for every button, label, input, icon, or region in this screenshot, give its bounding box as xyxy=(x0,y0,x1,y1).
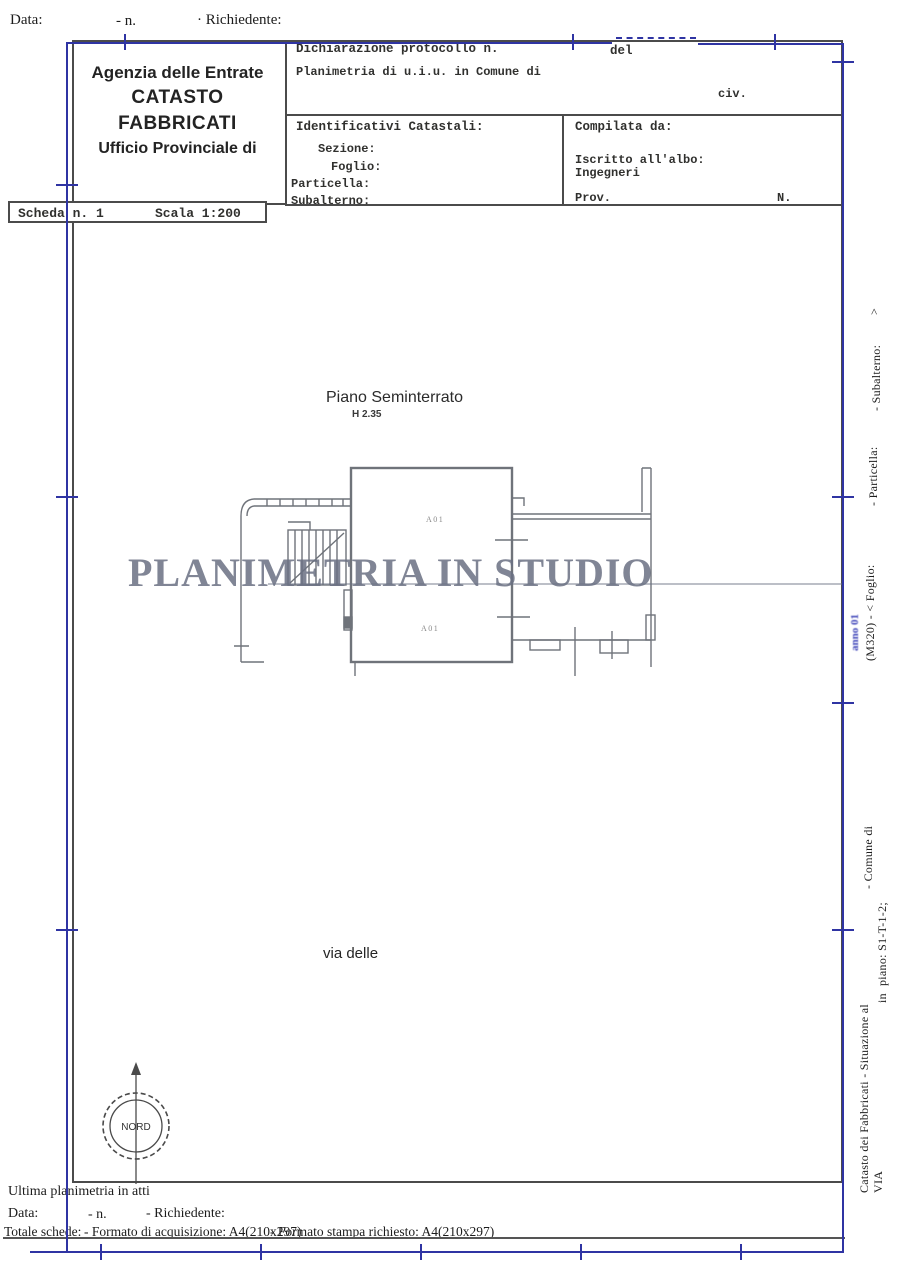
sidebar-catasto-text: Catasto dei Fabbricati - Situazione al xyxy=(857,1004,872,1193)
plan-pillar xyxy=(344,617,352,628)
sidebar-via-text: VIA xyxy=(871,1171,886,1193)
albo-value: Ingegneri xyxy=(575,166,640,180)
registration-tick xyxy=(260,1244,262,1260)
top-richiedente-label: · Richiedente: xyxy=(197,12,282,29)
footer-richiedente-label: - Richiedente: xyxy=(146,1206,225,1222)
subalterno-label: Subalterno: xyxy=(291,194,370,208)
sidebar-subalterno-text: - Subalterno: xyxy=(869,345,884,411)
top-data-label: Data: xyxy=(10,12,42,29)
sidebar-comune-text: - Comune di xyxy=(861,826,876,889)
registration-tick xyxy=(56,184,78,186)
albo-number-label: N. xyxy=(777,191,791,205)
identificativi-title: Identificativi Catastali: xyxy=(296,120,484,134)
sidebar-close-bracket: > xyxy=(867,308,882,315)
scheda-number: Scheda n. 1 xyxy=(18,206,104,221)
sidebar-blue-annotation: anno 01 xyxy=(849,614,861,651)
scheda-bar: Scheda n. 1 Scala 1:200 xyxy=(8,201,267,223)
registration-tick xyxy=(56,496,78,498)
registration-top-line-left xyxy=(66,42,612,44)
identificativi-compilata-divider xyxy=(562,114,564,206)
plan-window-wall xyxy=(241,499,351,516)
provincial-office-label: Ufficio Provinciale di xyxy=(70,137,285,161)
compass-arrowhead-icon xyxy=(131,1062,141,1075)
compass-north-label: NORD xyxy=(121,1122,150,1133)
prov-label: Prov. xyxy=(575,191,611,205)
room-label-2: A01 xyxy=(421,624,439,633)
document-scan: { "top_row": {"data": "Data:", "n": "- n… xyxy=(0,0,900,1275)
registration-tick xyxy=(580,1244,582,1260)
albo-label: Iscritto all'albo: xyxy=(575,153,705,167)
plan-bottom-tab-1 xyxy=(530,640,560,650)
sidebar-code-foglio-text: (M320) - < Foglio: xyxy=(863,564,878,661)
registration-tick xyxy=(572,34,574,50)
registration-tick xyxy=(774,34,776,50)
registration-tick xyxy=(420,1244,422,1260)
registration-tick xyxy=(56,929,78,931)
north-compass: NORD xyxy=(92,1062,182,1187)
compilata-title: Compilata da: xyxy=(575,120,673,134)
street-label: via delle xyxy=(323,945,378,962)
ultima-planimetria-label: Ultima planimetria in atti xyxy=(8,1184,150,1200)
registration-top-line-right xyxy=(698,43,844,45)
agency-header: Agenzia delle Entrate CATASTO FABBRICATI… xyxy=(70,60,285,161)
declaration-box-divider xyxy=(285,114,843,116)
planimetria-subject-label: Planimetria di u.i.u. in Comune di xyxy=(296,65,541,79)
room-label-1: A01 xyxy=(426,515,444,524)
sidebar-piano-text: piano: S1-T-1-2; xyxy=(875,902,890,986)
watermark-underline xyxy=(268,583,843,585)
footer-rule xyxy=(3,1237,845,1239)
protocol-label: Dichiarazione protocollo n. xyxy=(296,42,499,56)
watermark-text: PLANIMETRIA IN STUDIO xyxy=(128,549,654,596)
registration-tick xyxy=(832,61,854,63)
floor-height-label: H 2.35 xyxy=(352,409,381,420)
registration-tick xyxy=(100,1244,102,1260)
plan-bottom-tab-2 xyxy=(600,640,628,653)
sezione-label: Sezione: xyxy=(318,142,376,156)
registration-tick xyxy=(124,34,126,50)
registration-tick xyxy=(740,1244,742,1260)
registration-left-line xyxy=(66,42,68,1253)
footer-n-label: - n. xyxy=(88,1207,107,1223)
plan-window-ticks xyxy=(267,499,343,506)
particella-label: Particella: xyxy=(291,177,370,191)
registration-bottom-line xyxy=(30,1251,844,1253)
floor-title: Piano Seminterrato xyxy=(326,389,463,407)
sidebar-in-text: in xyxy=(875,993,890,1003)
declaration-box-left-border xyxy=(285,40,287,206)
del-label: del xyxy=(610,44,633,58)
foglio-label: Foglio: xyxy=(331,160,381,174)
registry-title: CATASTO FABBRICATI xyxy=(70,85,285,137)
registration-tick xyxy=(832,496,854,498)
agency-name: Agenzia delle Entrate xyxy=(70,60,285,85)
registration-dashed-date-line xyxy=(616,37,696,39)
top-n-label: - n. xyxy=(116,13,136,30)
footer-data-label: Data: xyxy=(8,1206,38,1222)
civ-label: civ. xyxy=(718,87,747,101)
sidebar-particella-text: - Particella: xyxy=(866,446,881,506)
scale-label: Scala 1:200 xyxy=(155,206,241,221)
registration-tick xyxy=(832,929,854,931)
plan-bottom-stubs xyxy=(355,627,651,676)
registration-right-line xyxy=(842,43,844,1253)
registration-tick xyxy=(832,702,854,704)
